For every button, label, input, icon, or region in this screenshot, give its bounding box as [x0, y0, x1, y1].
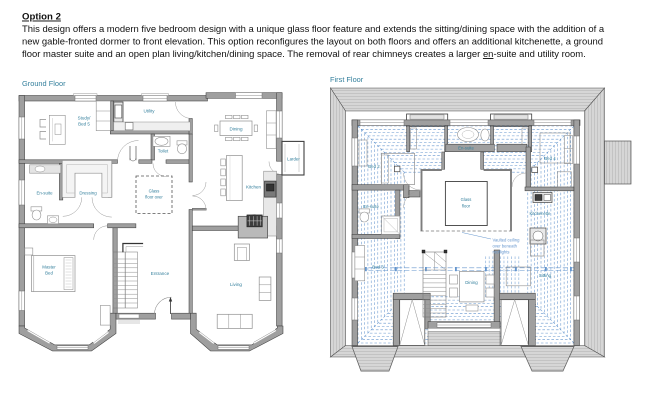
- svg-text:floor master suite and an open: floor master suite and an open plan livi…: [22, 49, 586, 60]
- svg-text:En-suite: En-suite: [36, 191, 53, 196]
- svg-text:Bed 3: Bed 3: [372, 265, 384, 270]
- svg-text:rooflights: rooflights: [493, 250, 510, 255]
- svg-text:Toilet: Toilet: [158, 149, 169, 154]
- svg-text:Option 2: Option 2: [22, 12, 61, 23]
- svg-text:Kitchen: Kitchen: [246, 185, 262, 190]
- svg-text:En-suite: En-suite: [458, 146, 474, 151]
- svg-text:Kitchenette: Kitchenette: [530, 211, 552, 216]
- svg-text:Study/: Study/: [78, 116, 92, 121]
- svg-text:Master: Master: [42, 265, 56, 270]
- svg-text:Bed 2: Bed 2: [368, 164, 380, 169]
- svg-text:Vaulted ceiling: Vaulted ceiling: [493, 238, 521, 243]
- svg-text:floor over: floor over: [145, 195, 163, 200]
- svg-text:Larder: Larder: [287, 157, 300, 162]
- svg-text:Ground Floor: Ground Floor: [22, 79, 66, 88]
- svg-text:new gable-fronted dormer to fr: new gable-fronted dormer to front elevat…: [22, 37, 603, 48]
- svg-text:Utility: Utility: [144, 109, 156, 114]
- svg-text:First Floor: First Floor: [330, 75, 364, 84]
- svg-text:Bed 4: Bed 4: [544, 156, 556, 161]
- svg-text:Living: Living: [230, 282, 242, 287]
- svg-text:Bed 5: Bed 5: [78, 122, 90, 127]
- svg-text:Entrance: Entrance: [151, 271, 170, 276]
- svg-text:Dining: Dining: [229, 127, 242, 132]
- svg-text:Glass: Glass: [461, 197, 472, 202]
- svg-text:Sitting: Sitting: [539, 273, 552, 278]
- svg-text:Glass: Glass: [149, 189, 160, 194]
- svg-text:Bed: Bed: [45, 271, 53, 276]
- svg-text:over beneath: over beneath: [493, 244, 518, 249]
- svg-text:Dressing: Dressing: [79, 191, 97, 196]
- svg-text:Dining: Dining: [465, 280, 478, 285]
- svg-text:En-suite: En-suite: [363, 204, 379, 209]
- svg-text:This design offers a modern fi: This design offers a modern five bedroom…: [22, 24, 605, 35]
- svg-text:floor: floor: [462, 204, 471, 209]
